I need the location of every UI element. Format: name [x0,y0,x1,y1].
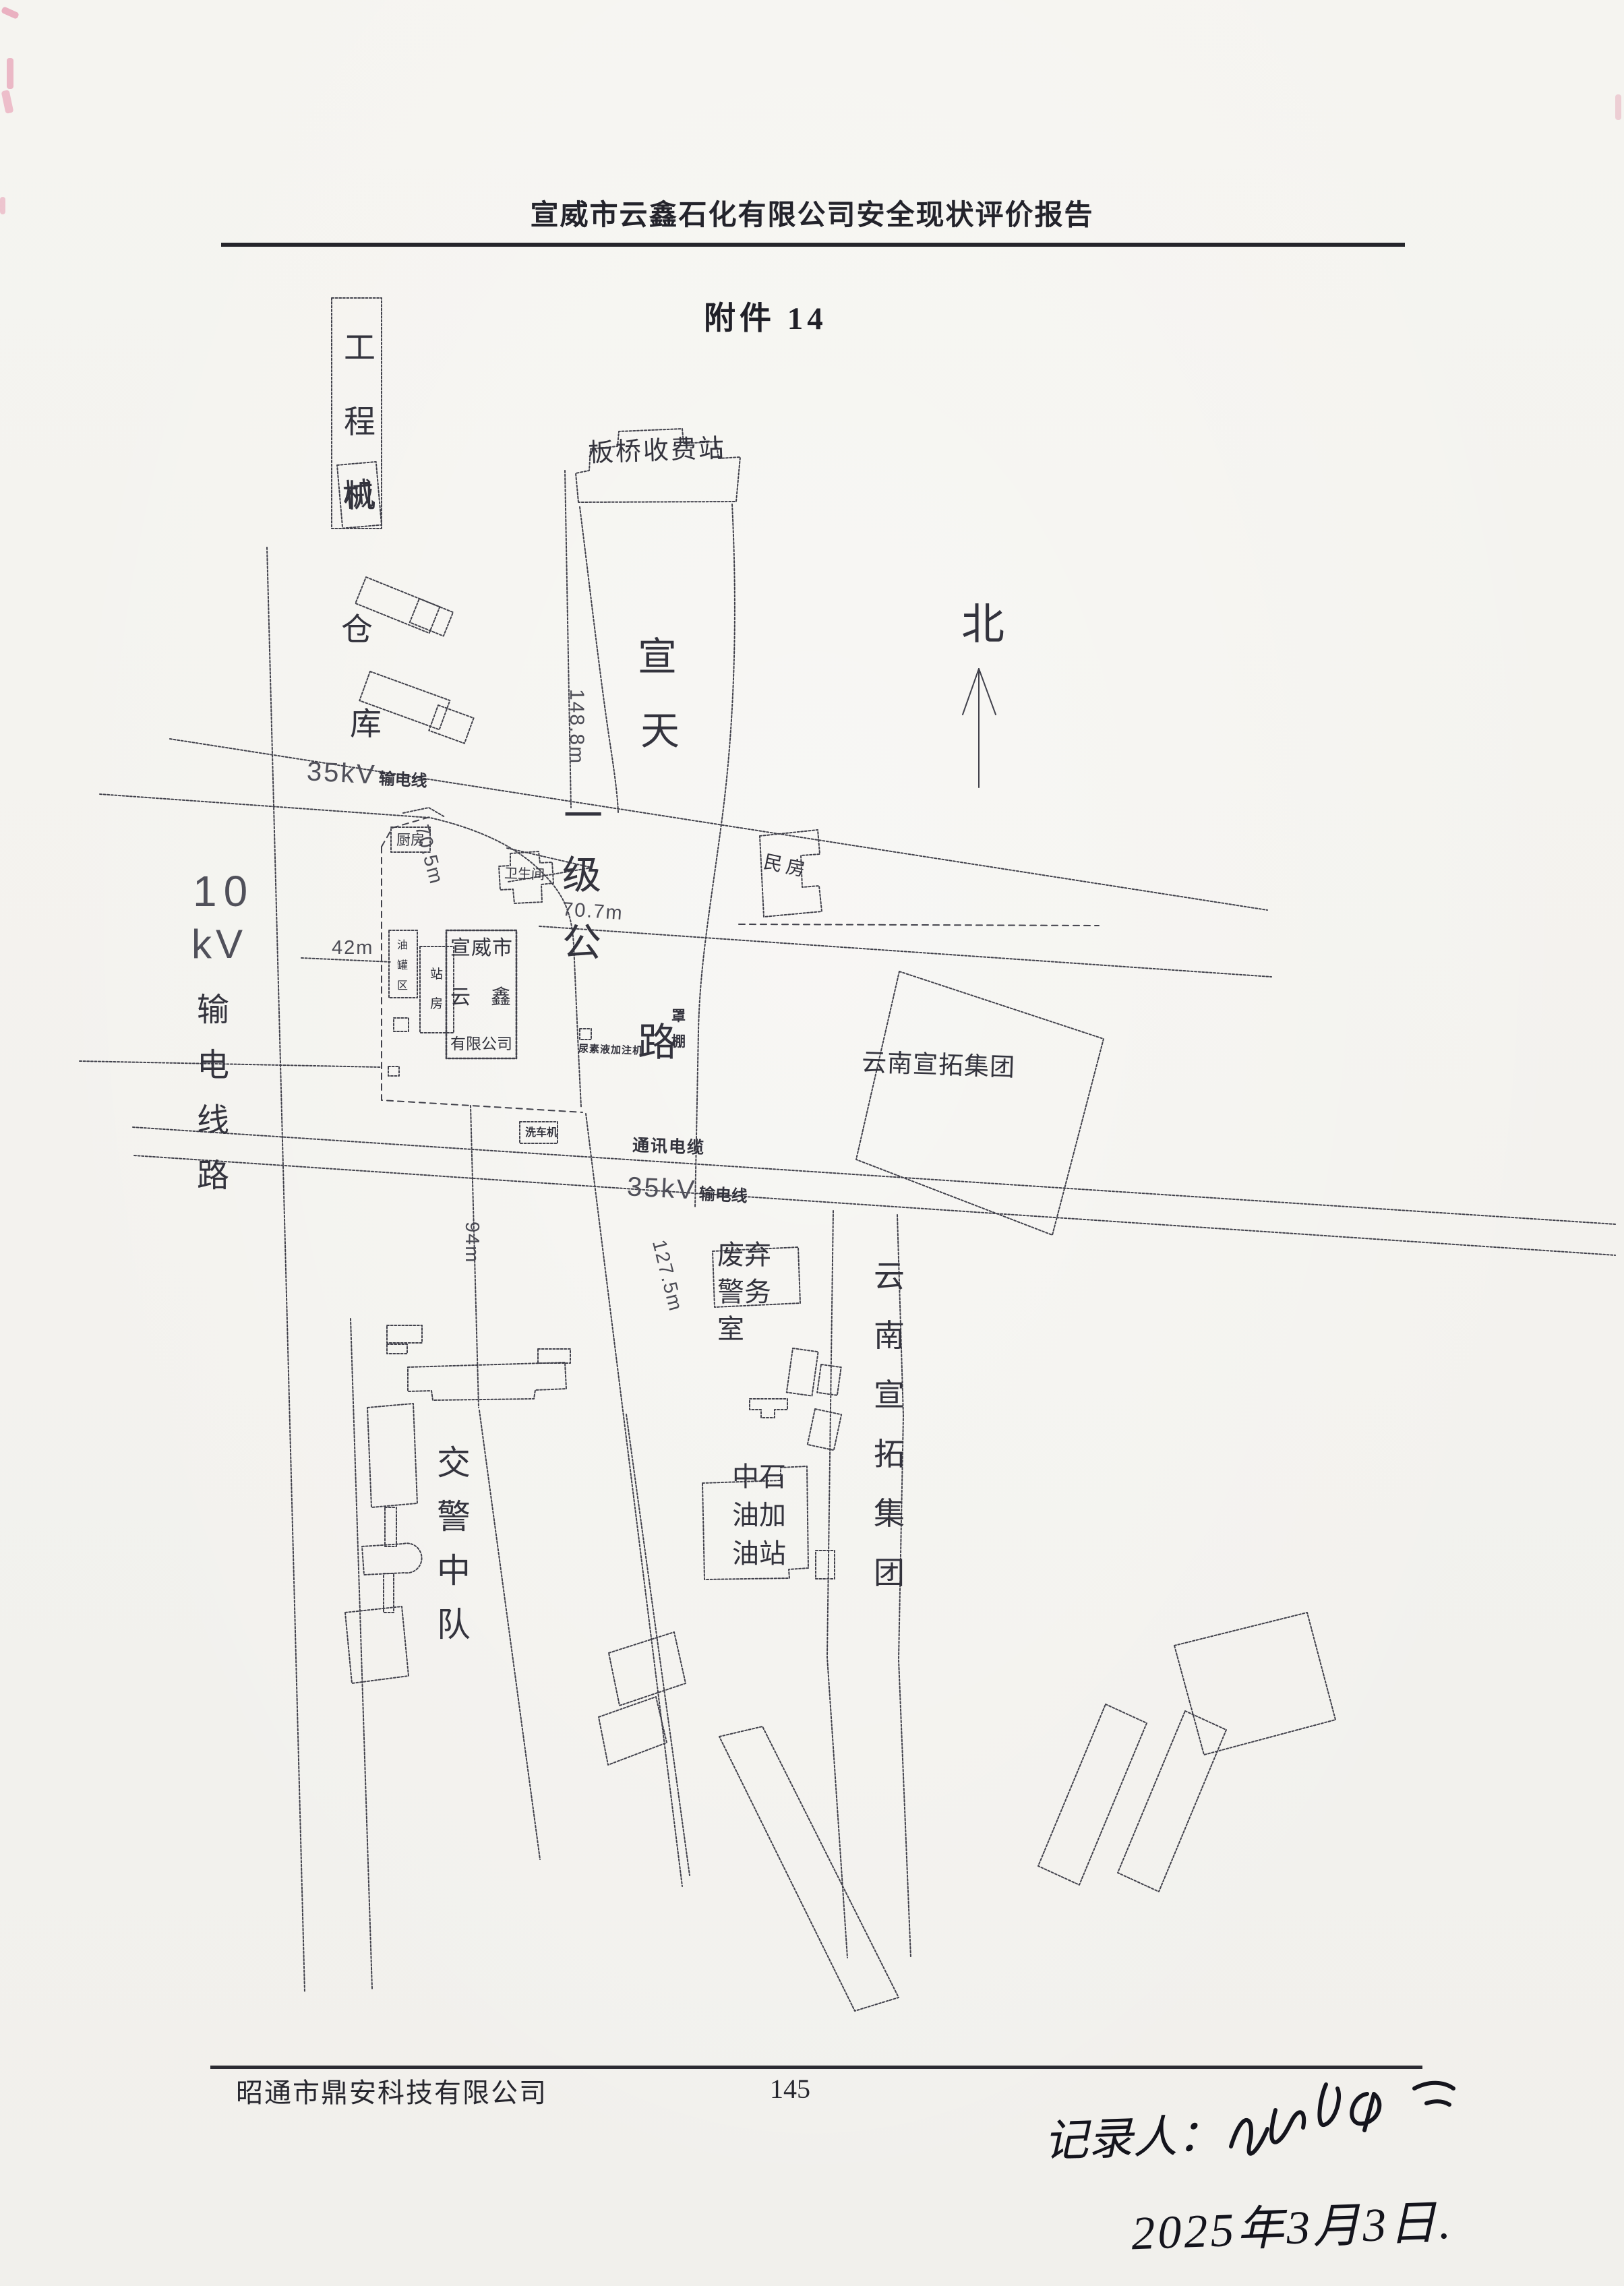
police-arm-rect [538,1349,570,1363]
power10-line2: kV [191,921,247,967]
canopy-label: 罩棚 [671,1003,686,1054]
handwritten-signature-strokes [1231,2083,1453,2154]
north-arrow-barb-right [979,669,996,715]
power35-upper-num: 35kV [306,756,377,789]
power35-lower-txt: 输电线 [698,1186,748,1206]
east-buildings [599,830,1335,2011]
strip-west-edge [827,1211,847,1958]
police-stem-2 [384,1573,394,1613]
highway-right-edge [695,504,735,1208]
road-west-edge [267,547,305,1993]
warehouse-label-xie: 械 [341,476,376,515]
urea-machine-label: 尿素液加注机 [578,1044,644,1058]
traffic-police-label: 交警中队 [437,1436,471,1652]
hex-building-1 [1038,1704,1147,1885]
north-label: 北 [961,600,1004,650]
footer-company: 昭通市鼎安科技有限公司 [236,2078,547,2109]
power35-upper-label: 35kV 输电线 [306,756,428,793]
tank-area-label: 油罐区 [397,936,408,996]
page-number: 145 [770,2074,810,2105]
highway-char-2: 天 [640,709,680,754]
building-c [808,1409,841,1450]
hex-building-2 [1118,1711,1226,1892]
kitchen-label: 厨房 [396,832,425,848]
cnpc-line-3: 油站 [732,1534,786,1573]
tilted-building-1 [609,1632,686,1706]
power10-line1: 10 [193,867,254,917]
footer-rule [210,2066,1422,2069]
north-arrow-barb-left [963,669,979,715]
building-t-shape [750,1399,787,1418]
warehouse-tilted-4 [429,705,473,744]
dim-70-7: 70.7m [562,899,624,926]
road-west-edge-2 [351,1319,372,1989]
company-line-2: 云 鑫 [450,986,514,1010]
highway-left-edge [580,507,618,812]
xuantuo-block-label: 云南宣拓集团 [861,1049,1015,1083]
restroom-label: 卫生间 [504,866,545,883]
roads-group [267,429,911,1993]
cnpc-line-1: 中石 [732,1457,786,1496]
police-small-rect-2 [387,1344,407,1354]
dim-148-8: 148.8m [565,689,589,764]
handwriting-recorder-label: 记录人： [1042,2099,1222,2169]
west-horizontal-line [80,1061,382,1067]
strip-small-building [816,1551,835,1579]
signature-scribble [1231,2084,1379,2154]
police-long-building [408,1362,566,1400]
site-plan-linework [0,0,1624,2286]
police-room-line-1: 废弃 [717,1236,771,1273]
handwriting-date: 2025年3月3日. [1130,2184,1454,2264]
highway-char-4: 级 [562,853,601,899]
police-small-rect-1 [387,1325,422,1343]
power35-lower-num: 35kV [626,1172,697,1205]
power35-lower-label: 35kV 输电线 [626,1171,748,1208]
telecom-cable-label: 通讯电缆 [632,1137,706,1159]
police-vertical-building [367,1404,417,1507]
building-b [817,1364,841,1395]
dim-94: 94m [460,1222,483,1263]
warehouse-label-cang: 仓 [341,612,373,649]
cnpc-line-2: 油加 [732,1496,786,1534]
police-stem-1 [385,1507,396,1546]
police-round-building [362,1543,422,1575]
small-square-2 [388,1066,399,1076]
police-bottom-building [345,1606,409,1683]
power-35kv-lower-line [134,1155,1615,1255]
car-wash-label: 洗车机 [525,1127,558,1139]
company-line-3: 有限公司 [450,1035,514,1053]
fuel-dispenser-square [580,1029,591,1040]
police-room-line-3: 室 [717,1311,771,1348]
signature-flourish [1414,2083,1453,2105]
dim-70-7-line [539,926,1271,977]
police-room-label: 废弃 警务 室 [717,1236,771,1348]
station-area [100,794,592,1143]
toll-station-label: 板桥收费站 [587,434,726,469]
highway-char-5: 公 [562,921,601,966]
highway-char-1: 宣 [638,635,677,680]
building-a [787,1348,818,1396]
long-thin-building [719,1726,899,2011]
power35-upper-txt: 输电线 [378,771,427,791]
warehouse-tilted-2 [410,599,453,636]
company-line-1: 宣威市 [450,937,514,961]
cnpc-station-label: 中石 油加 油站 [732,1457,786,1573]
north-arrow [963,669,996,787]
highway-char-3: 一 [564,794,603,839]
power10-vertical: 输电线路 [197,983,229,1204]
telecom-cable-line [133,1127,1615,1224]
small-square-1 [394,1018,409,1031]
scanned-report-page: 宣威市云鑫石化有限公司安全现状评价报告 附件 14 [0,0,1624,2286]
xuantuo-block-outline [856,971,1104,1235]
station-house-label: 站房 [430,960,443,1019]
power-and-dimension-lines [80,739,1615,1408]
dim-42: 42m [332,937,373,959]
property-dashed-line [739,924,1099,926]
warehouse-label-ku: 库 [350,706,382,743]
xuantuo-strip-label: 云南宣拓集团 [874,1247,905,1603]
big-tilted-building [1174,1613,1335,1755]
road-mid-lane [479,1410,540,1859]
police-room-line-2: 警务 [717,1273,771,1311]
tilted-building-2 [599,1697,667,1765]
company-label-block: 宣威市 云 鑫 有限公司 [450,937,514,1053]
road-southeast-edge [586,1114,682,1886]
